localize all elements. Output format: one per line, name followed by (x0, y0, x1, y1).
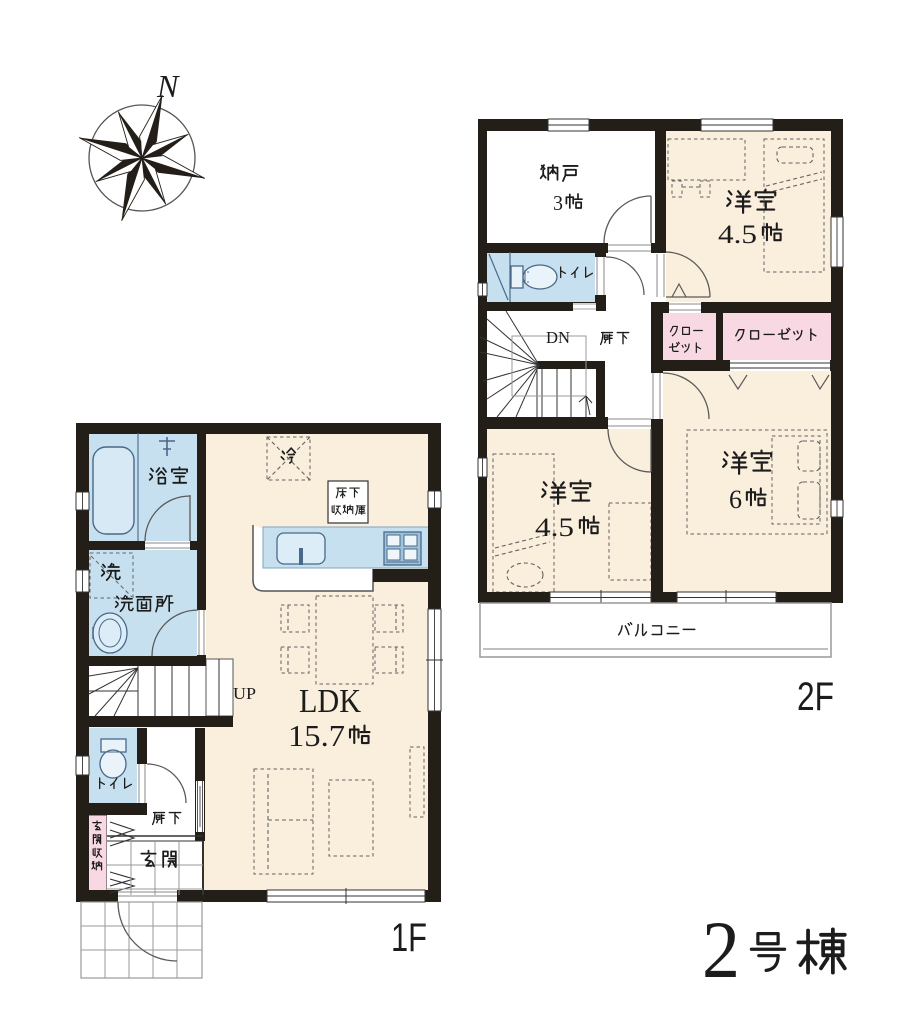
svg-text:4.5: 4.5 (718, 220, 757, 249)
svg-text:1F: 1F (391, 916, 427, 960)
svg-text:3: 3 (553, 191, 563, 215)
svg-text:N: N (156, 68, 180, 104)
svg-text:UP: UP (233, 684, 256, 703)
svg-text:6: 6 (729, 485, 742, 514)
svg-text:2: 2 (702, 904, 740, 995)
svg-text:LDK: LDK (299, 683, 361, 720)
svg-text:15.7: 15.7 (288, 718, 345, 753)
svg-text:2F: 2F (797, 675, 834, 719)
svg-text:DN: DN (546, 328, 570, 347)
svg-text:4.5: 4.5 (535, 513, 574, 542)
